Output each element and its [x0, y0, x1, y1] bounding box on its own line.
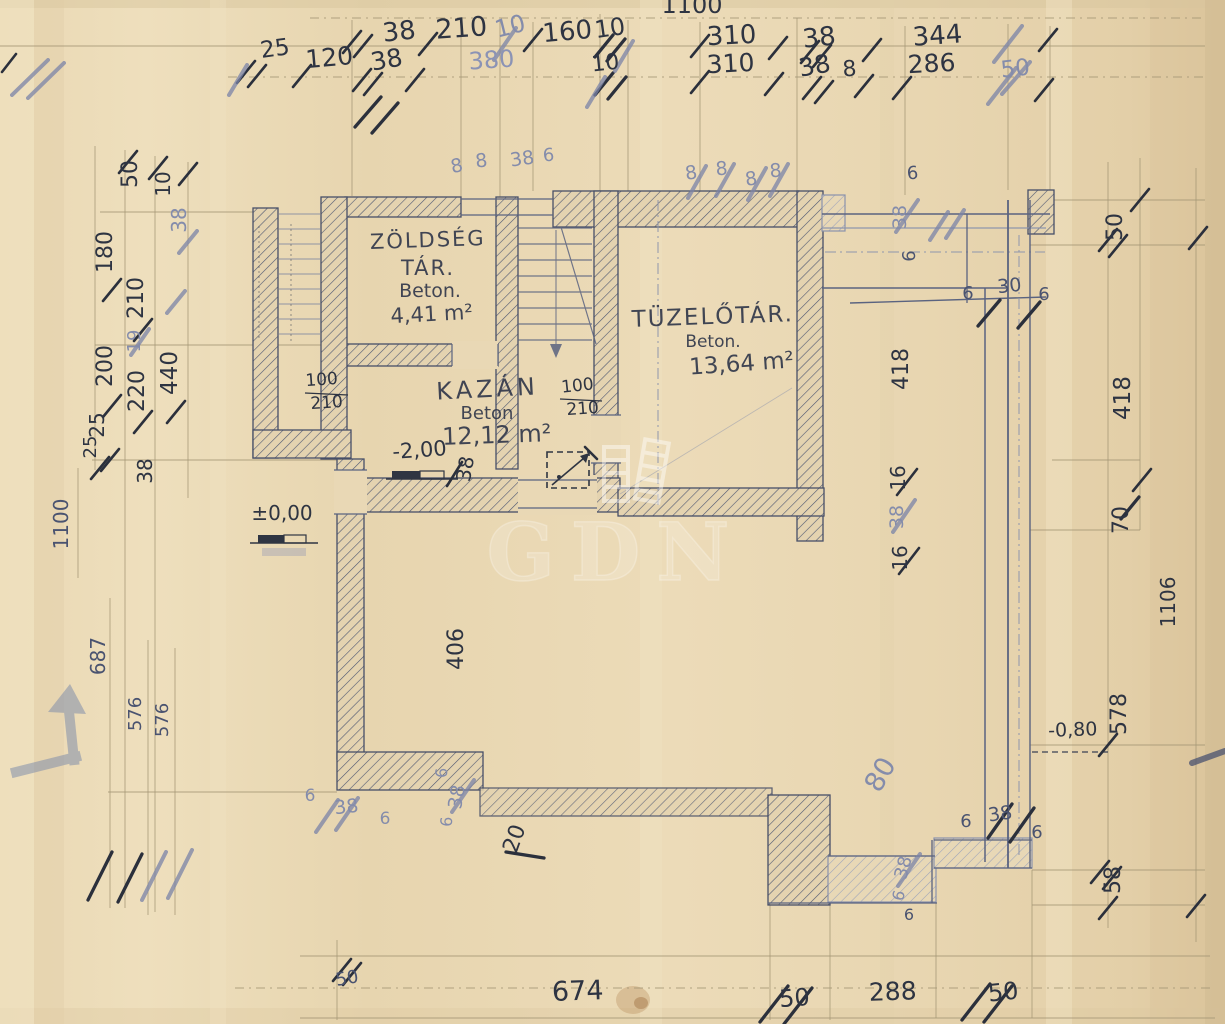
dim-label: 576 — [152, 703, 173, 737]
dim-label: 25 — [259, 34, 292, 64]
dim-label: 50 — [1103, 213, 1128, 241]
door1-height: 210 — [310, 392, 344, 414]
dim-label: 38 — [368, 43, 404, 77]
dim-label: 8 — [842, 57, 858, 83]
level-offset: -0,80 — [1048, 718, 1098, 742]
dim-label: 50 — [987, 977, 1020, 1008]
room-kazan-name: KAZÁN — [436, 371, 540, 405]
dim-label: 1106 — [1156, 577, 1180, 628]
dim-label: 16 — [888, 545, 912, 570]
dim-label: 38 — [796, 49, 832, 83]
dim-label: 120 — [304, 41, 354, 74]
dim-label: 1100 — [661, 0, 722, 19]
dim-label: 25 — [85, 412, 109, 437]
room-tuzelo-material: Beton. — [685, 332, 740, 352]
room-zoldseg-material: Beton. — [399, 280, 461, 302]
dim-label: 6 — [960, 811, 971, 832]
watermark-text: GDN — [487, 505, 746, 599]
dim-label: 8 — [474, 149, 488, 172]
dim-label: 418 — [889, 348, 914, 390]
dim-label: 6 — [899, 250, 920, 261]
dim-label: 38 — [133, 458, 157, 483]
wall-left-upper — [321, 197, 347, 459]
dim-label: 6 — [432, 767, 451, 778]
dim-label: 160 — [541, 15, 593, 49]
wall-top-main — [553, 191, 799, 227]
dim-label: 10 — [151, 171, 175, 196]
wall-bottom-step — [828, 856, 936, 902]
dim-label: 6 — [1031, 822, 1042, 843]
dim-label: 576 — [125, 697, 146, 731]
dim-label: 220 — [125, 370, 150, 412]
dim-label: 10 — [590, 50, 620, 78]
dim-label: 30 — [996, 274, 1022, 298]
wall-wing-left — [253, 208, 278, 458]
dim-label: 6 — [904, 905, 914, 924]
dim-label: 25 — [80, 436, 101, 459]
room-tuzelo-area: 13,64 m² — [688, 347, 794, 380]
dim-label: 6 — [437, 816, 457, 827]
wall-top-zoldseg — [345, 197, 461, 217]
floor-plan-canvas: GDN ZÖLDSÉG TÁR. Beton. 4,41 m² KAZÁN Be… — [0, 0, 1225, 1024]
stair-main — [518, 227, 596, 358]
dim-label: 200 — [93, 345, 118, 387]
dim-label: 50 — [999, 55, 1031, 84]
pier-rightwing-left — [822, 195, 845, 231]
dim-label: 38 — [509, 146, 536, 171]
dim-label: 440 — [157, 351, 183, 395]
dim-label: 310 — [706, 48, 755, 79]
dim-label: 406 — [444, 628, 469, 670]
dim-label: 210 — [124, 277, 149, 319]
dim-label: 286 — [907, 48, 956, 79]
dim-label: 38 — [333, 795, 359, 819]
dim-label: 418 — [1110, 376, 1136, 420]
dim-label: 6 — [962, 283, 973, 304]
wall-bottom-left — [337, 752, 483, 790]
room-zoldseg-type: TÁR. — [400, 255, 455, 280]
dim-label: 10 — [492, 9, 528, 44]
dim-label: 8 — [769, 160, 783, 183]
room-zoldseg-area: 4,41 m² — [390, 300, 473, 328]
dim-label: 19 — [124, 330, 145, 353]
wall-rightwing-bottom — [934, 838, 1032, 868]
dim-label: 50 — [778, 983, 810, 1013]
dim-label: 10 — [593, 12, 627, 44]
dim-label: 687 — [86, 637, 110, 675]
dim-label: 38 — [444, 783, 470, 811]
dim-label: 8 — [715, 158, 729, 181]
dim-label: 6 — [906, 163, 919, 185]
dim-label: 38 — [987, 801, 1014, 826]
dim-label: 674 — [551, 975, 604, 1008]
dim-label: 6 — [380, 809, 391, 829]
room-zoldseg-name: ZÖLDSÉG — [370, 225, 486, 254]
dim-label: 16 — [886, 465, 910, 490]
dim-label: 38 — [889, 205, 911, 229]
dim-label: 1100 — [49, 499, 73, 550]
door1-width: 100 — [305, 369, 339, 391]
dim-label: 210 — [435, 11, 489, 46]
room-kazan-area: 12,12 m² — [442, 419, 552, 451]
dim-label: 20 — [498, 821, 531, 856]
dim-label: 6 — [542, 145, 555, 167]
wall-wing-bottom — [253, 430, 351, 458]
dim-label: 80 — [859, 752, 903, 797]
level-basement: -2,00 — [392, 436, 448, 464]
dim-label: 38 — [451, 454, 479, 483]
level-ground: ±0,00 — [251, 501, 312, 525]
dim-label: 50 — [118, 160, 143, 188]
dim-label: 578 — [1107, 693, 1132, 735]
wall-bottom-mid — [480, 788, 772, 816]
dim-label: 8 — [684, 161, 699, 184]
dim-label: 6 — [1038, 284, 1049, 305]
dim-label: 288 — [868, 976, 917, 1007]
door2-width: 100 — [560, 374, 594, 397]
dim-label: 8 — [744, 167, 759, 190]
dim-label: 180 — [93, 231, 118, 273]
dim-label: 6 — [305, 786, 316, 806]
dim-label: 8 — [449, 154, 465, 178]
dim-label: 50 — [334, 966, 360, 991]
dim-label: 380 — [468, 44, 516, 75]
dim-label: 38 — [886, 505, 908, 529]
pier-bottom — [768, 795, 830, 905]
scanned-floor-plan: GDN ZÖLDSÉG TÁR. Beton. 4,41 m² KAZÁN Be… — [0, 0, 1225, 1024]
dim-label: 58 — [1101, 866, 1126, 894]
dim-label: 70 — [1109, 506, 1134, 534]
dim-label: 38 — [167, 207, 191, 232]
